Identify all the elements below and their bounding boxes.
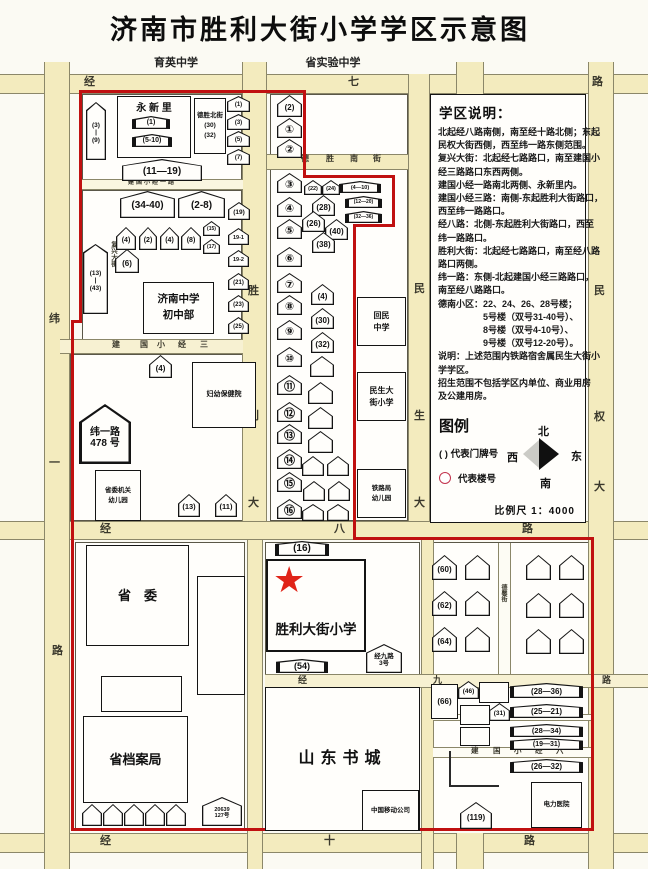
district-boundary-segment [79, 90, 82, 323]
building-box: ★胜利大街小学 [266, 559, 366, 652]
building-box: 民生大 街小学 [357, 372, 406, 421]
street-label: 一 [49, 458, 60, 469]
house-number-label: (1) [132, 116, 170, 129]
house-number-label: (4) [116, 227, 136, 250]
house: (119) [460, 802, 492, 829]
house [308, 431, 333, 453]
street [456, 62, 484, 94]
street [247, 540, 263, 869]
house-number-label: (17) [203, 239, 220, 254]
compass: 北 南 西 东 [505, 423, 585, 489]
house: ⑬ [277, 424, 302, 444]
house-number-label: (28—34) [510, 724, 583, 737]
district-boundary-segment [303, 90, 306, 178]
house-fill [311, 357, 332, 375]
house-number-label: 19-2 [228, 250, 249, 267]
house-outline [166, 804, 186, 826]
house-fill [303, 505, 322, 519]
house-outline [526, 593, 551, 618]
house-number-label: (4) [311, 284, 334, 305]
street-label: 十 [324, 836, 335, 847]
house: (60) [432, 555, 457, 580]
house [166, 804, 186, 826]
house-bar: (25—21) [510, 704, 583, 718]
house-number-label: (60) [432, 555, 457, 580]
house-fill [328, 457, 347, 474]
district-boundary-segment [353, 537, 594, 540]
street-label: 国 [493, 747, 501, 755]
house: (22) [304, 180, 322, 195]
house-outline [310, 356, 334, 377]
house: ⑮ [277, 472, 302, 492]
panel-body-line: 经三路路口东西两侧。 [438, 166, 582, 179]
building-label: 电力医院 [544, 800, 570, 810]
house: (3) | (9) [86, 102, 106, 160]
house: (17) [203, 239, 220, 254]
house-bar: (54) [276, 659, 328, 673]
street-label: 南 [350, 155, 358, 163]
house-number-label: (30) [311, 308, 334, 329]
house-number-label: (32—36) [345, 211, 382, 223]
house-number-label: (28—36) [510, 683, 583, 698]
building-box: 省 委 [86, 545, 189, 646]
house: 20639 127号 [202, 797, 242, 826]
house [327, 456, 349, 476]
house-outline [465, 591, 490, 616]
building-label: 省委机关 幼儿园 [105, 486, 131, 506]
compass-west-arrow-icon [523, 440, 539, 468]
house-bar: (5-10) [132, 134, 172, 147]
map-scale: 比例尺 1：4000 [431, 502, 575, 517]
house: (13) | (43) [83, 244, 108, 314]
house: (46) [458, 681, 479, 699]
house-outline [103, 804, 123, 826]
house-number-label: (24) [322, 180, 340, 195]
panel-body-line: 纬一路路口。 [438, 232, 582, 245]
street-label: 大 [248, 498, 259, 509]
house-number-label: (25) [228, 317, 249, 334]
house: (24) [322, 180, 340, 195]
house [103, 804, 123, 826]
district-boundary-segment [79, 90, 306, 93]
house-number-label: (4) [149, 355, 172, 378]
street-label: 民 [594, 286, 605, 297]
compass-north-label: 北 [538, 423, 549, 439]
house: 经九路 3号 [366, 644, 402, 673]
house-number-label: ① [277, 118, 302, 138]
house: (1) [227, 96, 250, 112]
street-label: 七 [348, 77, 359, 88]
street-label: 经 [178, 341, 186, 349]
house-number-label: (6) [115, 249, 139, 273]
house [559, 593, 584, 618]
house-number-label: 经九路 3号 [366, 644, 402, 673]
house: (15) [203, 221, 220, 236]
house: (64) [432, 627, 457, 652]
building-box: 济南中学 初中部 [143, 282, 214, 334]
house-number-label: (3) | (9) [86, 102, 106, 160]
house: (32) [311, 332, 334, 353]
street-label: 建 [112, 341, 120, 349]
house-outline [308, 407, 333, 429]
district-description-panel: 学区说明： 北起经八路南侧，南至经十路北侧；东起民权大街西侧，西至纬一路东侧范围… [430, 94, 586, 523]
house [310, 356, 334, 377]
house-number-label: ⑬ [277, 424, 302, 444]
house [526, 593, 551, 618]
street-label: 三 [200, 341, 208, 349]
house-outline [124, 804, 144, 826]
panel-body-line: 招生范围不包括学区内单位、商业用房 [438, 377, 582, 390]
house: ⑦ [277, 273, 302, 293]
house-number-label: 19-1 [228, 228, 249, 245]
building-box: 回民 中学 [357, 297, 406, 346]
legend-building-label: 代表楼号 [458, 471, 496, 485]
street [498, 543, 511, 674]
panel-body-line: 民权大街西侧，西至纬一路东侧范围。 [438, 139, 582, 152]
house: ⑪ [277, 375, 302, 395]
street [408, 74, 430, 521]
house-number-label: ⑯ [277, 499, 302, 519]
house-fill [527, 594, 549, 616]
house-outline [559, 629, 584, 654]
house-bar: (26—32) [510, 759, 583, 773]
house-outline [465, 627, 490, 652]
house: (23) [228, 295, 249, 312]
building-label: 济南中学 初中部 [158, 292, 200, 324]
panel-body-line: 说明：上述范围内铁路宿舍属民生大街小 [438, 350, 582, 363]
house-number-label: (15) [203, 221, 220, 236]
panel-body-line: 经八路：北侧-东起胜利大街路口，西至 [438, 218, 582, 231]
house-fill [104, 805, 121, 824]
house: ⑯ [277, 499, 302, 519]
house-outline [302, 456, 324, 476]
house-number-label: (26—32) [510, 759, 583, 773]
house-number-label: (11—19) [122, 159, 202, 181]
house-number-label: (3) [227, 114, 250, 130]
house-number-label: 20639 127号 [202, 797, 242, 826]
building-label: 胜利大街小学 [276, 620, 357, 640]
house-number-label: ② [277, 139, 302, 158]
house-fill [527, 630, 549, 652]
red-star-icon: ★ [273, 562, 305, 598]
house [526, 555, 551, 580]
house: ⑤ [277, 219, 302, 239]
street-label: 权 [594, 412, 605, 423]
house-number-label: (23) [228, 295, 249, 312]
house-outline [465, 555, 490, 580]
house-fill [329, 482, 348, 499]
house-outline [559, 555, 584, 580]
building-box: 德胜北街 (30) (32) [194, 98, 226, 154]
street-label: 生 [414, 411, 425, 422]
panel-body-line: 及公建用房。 [438, 390, 582, 403]
building-box: 中国移动公司 [362, 790, 419, 831]
house-number-label: ⑤ [277, 219, 302, 239]
house-number-label: (8) [181, 227, 201, 250]
house: 19-2 [228, 250, 249, 267]
building-number-circle-icon [439, 472, 451, 484]
house-outline [327, 456, 349, 476]
house: (8) [181, 227, 201, 250]
building-label: (66) [437, 696, 451, 708]
district-boundary-segment [303, 175, 395, 178]
house-number-label: (31) [489, 703, 510, 721]
house-outline [526, 629, 551, 654]
house [302, 456, 324, 476]
building-box [479, 682, 509, 703]
panel-body-line: 建国小经三路：南侧-东起胜利大街路口， [438, 192, 582, 205]
building-box: 铁路局 幼儿园 [357, 469, 406, 518]
house-number-label: 纬一路 478 号 [79, 404, 131, 464]
house-number-label: (19) [228, 202, 250, 220]
house-number-label: (2) [277, 95, 302, 117]
house-number-label: (13) | (43) [83, 244, 108, 314]
house-fill [560, 594, 582, 616]
house-fill [466, 592, 488, 614]
house-number-label: ⑥ [277, 247, 302, 267]
panel-body-line: 8号楼（双号4-10号）、 [438, 324, 582, 337]
panel-body-line: 南至经八路路口。 [438, 284, 582, 297]
house [308, 407, 333, 429]
house: ⑩ [277, 347, 302, 367]
house-bar: (28—36) [510, 683, 583, 698]
building-label: 中国移动公司 [371, 806, 410, 816]
district-boundary-segment [71, 320, 74, 831]
house-bar: (28—34) [510, 724, 583, 737]
house [124, 804, 144, 826]
street-label: 八 [334, 524, 345, 535]
building-box [197, 576, 245, 695]
street-label: 路 [592, 77, 603, 88]
building-box: 电力医院 [531, 782, 582, 828]
house-number-label: (2) [139, 227, 157, 250]
house: (19) [228, 202, 250, 220]
house: ⑧ [277, 295, 302, 315]
house-number-label: (1) [227, 96, 250, 112]
building-box [460, 705, 490, 725]
house-fill [125, 805, 142, 824]
house: (38) [312, 232, 335, 253]
house: 19-1 [228, 228, 249, 245]
building-label: 德胜北街 (30) (32) [197, 111, 223, 140]
house [327, 504, 349, 521]
house-fill [309, 408, 331, 427]
building-box [101, 676, 182, 712]
house-bar: (19—31) [510, 738, 583, 750]
house-fill [167, 805, 184, 824]
street-label: 经 [100, 836, 111, 847]
house-outline [145, 804, 165, 826]
house: ⑭ [277, 449, 302, 469]
district-boundary-segment [591, 537, 594, 831]
house: ⑨ [277, 320, 302, 340]
house-fill [309, 383, 331, 402]
house-number-label: (26) [302, 211, 325, 232]
house-number-label: (62) [432, 591, 457, 616]
house-outline [308, 382, 333, 404]
house-number-label: ⑧ [277, 295, 302, 315]
wall-line [449, 751, 451, 787]
street-label: 小 [157, 341, 165, 349]
panel-body-text: 北起经八路南侧，南至经十路北侧；东起民权大街西侧，西至纬一路东侧范围。复兴大街：… [438, 126, 582, 403]
house [82, 804, 102, 826]
house-outline [559, 593, 584, 618]
house-number-label: (19—31) [510, 738, 583, 750]
panel-body-line: 西至纬一路路口。 [438, 205, 582, 218]
house: (30) [311, 308, 334, 329]
house-fill [466, 628, 488, 650]
house-number-label: (34-40) [120, 191, 175, 218]
house-fill [303, 457, 322, 474]
wall-line [449, 785, 499, 787]
street-label: 民 [414, 284, 425, 295]
building-box: 省委机关 幼儿园 [95, 470, 141, 521]
panel-body-line: 9号楼（双号12-20号）。 [438, 337, 582, 350]
house: (11) [215, 494, 237, 517]
building-label: 省档案局 [109, 750, 161, 770]
panel-body-line: 5号楼（双号31-40号）、 [438, 311, 582, 324]
legend-title: 图例 [439, 415, 469, 436]
house-number-label: (4—10) [339, 181, 381, 193]
street-label: 建 [471, 747, 479, 755]
house [465, 591, 490, 616]
house: (6) [115, 249, 139, 273]
house-number-label: ⑮ [277, 472, 302, 492]
house: (21) [228, 273, 249, 290]
house-bar: (4—10) [339, 181, 381, 193]
house-bar: (1) [132, 116, 170, 129]
house: (5) [227, 131, 250, 147]
house [145, 804, 165, 826]
house-outline [327, 504, 349, 521]
house-number-label: (5-10) [132, 134, 172, 147]
house [308, 382, 333, 404]
house-number-label: (16) [275, 541, 329, 556]
house-number-label: ⑪ [277, 375, 302, 395]
house: ⑥ [277, 247, 302, 267]
panel-body-line: 学学区。 [438, 364, 582, 377]
panel-body-line: 路口两侧。 [438, 258, 582, 271]
house-fill [304, 482, 323, 499]
house: (4) [116, 227, 136, 250]
house: (4) [160, 227, 179, 250]
house [559, 629, 584, 654]
house: ① [277, 118, 302, 138]
street [60, 339, 243, 354]
panel-body-line: 胜利大街：北起经七路路口，南至经八路 [438, 245, 582, 258]
house: (4) [149, 355, 172, 378]
compass-west-label: 西 [507, 449, 518, 465]
building-box: (66) [431, 684, 458, 719]
building-label: 铁路局 幼儿园 [372, 484, 392, 504]
house-fill [146, 805, 163, 824]
house-number-label: (12—20) [345, 196, 382, 208]
house-fill [328, 505, 347, 519]
street-label: 路 [52, 646, 63, 657]
house: (25) [228, 317, 249, 334]
house-fill [527, 556, 549, 578]
house: 纬一路 478 号 [79, 404, 131, 464]
street-label: 路 [602, 676, 611, 685]
panel-body-line: 复兴大街：北起经七路路口，南至建国小 [438, 152, 582, 165]
building-label: 回民 中学 [374, 310, 390, 334]
house-number-label: ⑦ [277, 273, 302, 293]
house-bar: (32—36) [345, 211, 382, 223]
district-boundary-segment [353, 224, 395, 227]
building-label: 山东书城 [298, 747, 386, 771]
panel-title: 学区说明： [439, 102, 512, 122]
house-fill [560, 556, 582, 578]
compass-south-label: 南 [540, 475, 551, 491]
house: (11—19) [122, 159, 202, 181]
street-label: 德馨街 [500, 584, 506, 602]
house-number-label: ⑩ [277, 347, 302, 367]
street-label: 纬 [49, 314, 60, 325]
house-number-label: ④ [277, 197, 302, 217]
house: (3) [227, 114, 250, 130]
house-fill [466, 556, 488, 578]
street-label: 胜 [248, 286, 259, 297]
house-number-label: ⑨ [277, 320, 302, 340]
street [456, 833, 484, 869]
house: ④ [277, 197, 302, 217]
legend-door-number: ( ) 代表门牌号 [439, 446, 498, 460]
district-boundary-segment [392, 175, 395, 227]
house [465, 627, 490, 652]
street-label: 经 [84, 77, 95, 88]
house-bar: (12—20) [345, 196, 382, 208]
street-label: 经 [100, 524, 111, 535]
house-outline [526, 555, 551, 580]
house [559, 555, 584, 580]
house-number-label: ⑭ [277, 449, 302, 469]
compass-east-label: 东 [571, 448, 582, 464]
house-number-label: ⑫ [277, 402, 302, 422]
house-outline [308, 431, 333, 453]
house-number-label: (7) [227, 149, 250, 165]
house: (2-8) [178, 191, 225, 218]
house: (4) [311, 284, 334, 305]
house-number-label: (22) [304, 180, 322, 195]
house [526, 629, 551, 654]
house-number-label: (119) [460, 802, 492, 829]
panel-body-line: 建国小经一路南北两侧、永新里内。 [438, 179, 582, 192]
house: (2) [139, 227, 157, 250]
panel-body-line: 德南小区：22、24、26、28号楼； [438, 298, 582, 311]
house: (62) [432, 591, 457, 616]
building-box [460, 727, 490, 746]
building-label: 妇幼保健院 [207, 390, 242, 401]
house-number-label: (11) [215, 494, 237, 517]
house-number-label: (32) [311, 332, 334, 353]
house-outline [328, 481, 350, 501]
house-number-label: (64) [432, 627, 457, 652]
street-label: 街 [373, 155, 381, 163]
house-outline [82, 804, 102, 826]
house: ⑫ [277, 402, 302, 422]
house [465, 555, 490, 580]
house-number-label: (13) [178, 494, 200, 517]
street-label: 路 [524, 836, 535, 847]
street-label: 国 [140, 341, 148, 349]
street-label: 经 [298, 676, 307, 685]
house-number-label: (2-8) [178, 191, 225, 218]
house-outline [302, 504, 324, 521]
house-fill [309, 432, 331, 451]
house-number-label: (4) [160, 227, 179, 250]
house-number-label: (46) [458, 681, 479, 699]
house: (7) [227, 149, 250, 165]
